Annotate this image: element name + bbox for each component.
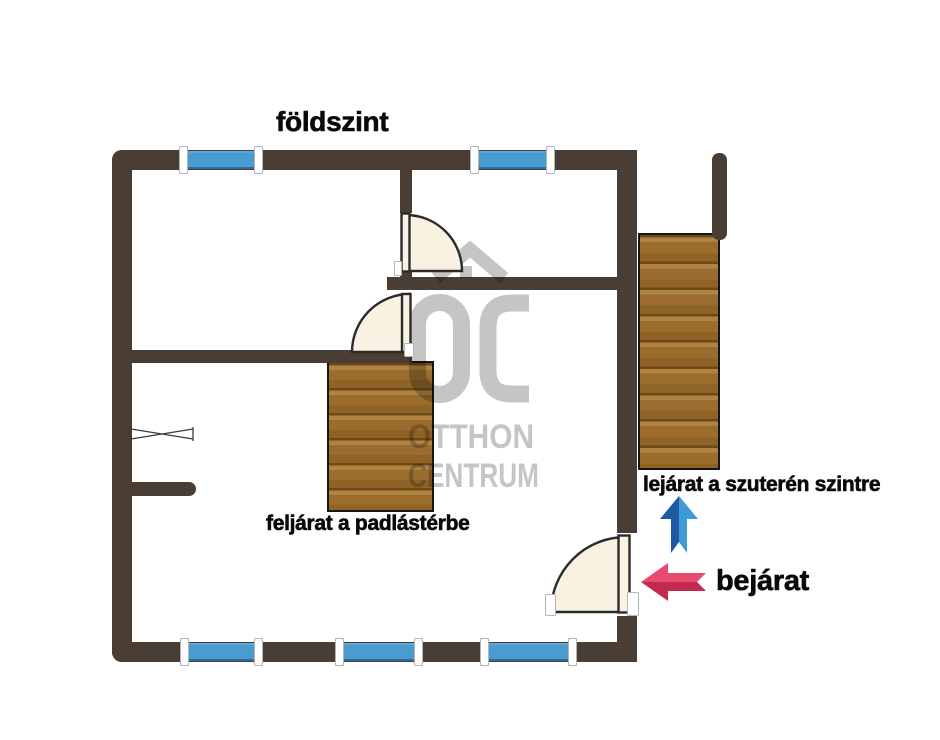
stairs-to-attic [327, 361, 434, 512]
door-upper-room [402, 214, 463, 272]
doors-layer [0, 0, 940, 740]
door-jamb [627, 592, 639, 616]
window-jamb [179, 146, 188, 174]
wall-right-lower [617, 616, 637, 662]
wall-stub-top-right [712, 153, 727, 240]
window-bottom-2 [344, 643, 414, 661]
door-middle-room [352, 294, 411, 352]
wall-left [112, 150, 132, 662]
wall-interior-upper [387, 277, 637, 290]
door-jamb [545, 594, 556, 616]
stairs-to-basement [638, 233, 720, 470]
window-jamb [480, 638, 489, 666]
window-jamb [470, 146, 479, 174]
radiator-symbol [130, 424, 194, 444]
window-bottom-1 [189, 643, 254, 661]
wall-interior-middle [112, 350, 412, 363]
watermark-logo: OTTHON CENTRUM [0, 0, 940, 740]
window-top-left [188, 151, 254, 169]
oc-monogram [418, 303, 530, 395]
page-title: földszint [276, 106, 388, 138]
window-jamb [335, 638, 344, 666]
wall-partition-upper [400, 170, 412, 213]
wall-right-upper [617, 150, 637, 533]
house-roof-icon [436, 249, 504, 278]
attic-stairs-label: feljárat a padlástérbe [266, 512, 470, 536]
window-jamb [568, 638, 577, 666]
entrance-arrow-icon [640, 562, 708, 602]
floor-plan: földszint OTTHON CE [0, 0, 940, 740]
window-jamb [254, 146, 263, 174]
door-jamb [394, 261, 402, 276]
window-jamb [180, 638, 189, 666]
door-entrance [551, 536, 630, 613]
window-jamb [546, 146, 555, 174]
window-top-right [479, 151, 546, 169]
wall-stub-left [130, 482, 196, 496]
door-jamb [404, 343, 414, 357]
entrance-label: bejárat [716, 565, 809, 598]
window-bottom-3 [489, 643, 568, 661]
up-arrow-icon [658, 495, 700, 555]
window-jamb [254, 638, 263, 666]
basement-stairs-label: lejárat a szuterén szintre [643, 473, 880, 497]
window-jamb [414, 638, 423, 666]
